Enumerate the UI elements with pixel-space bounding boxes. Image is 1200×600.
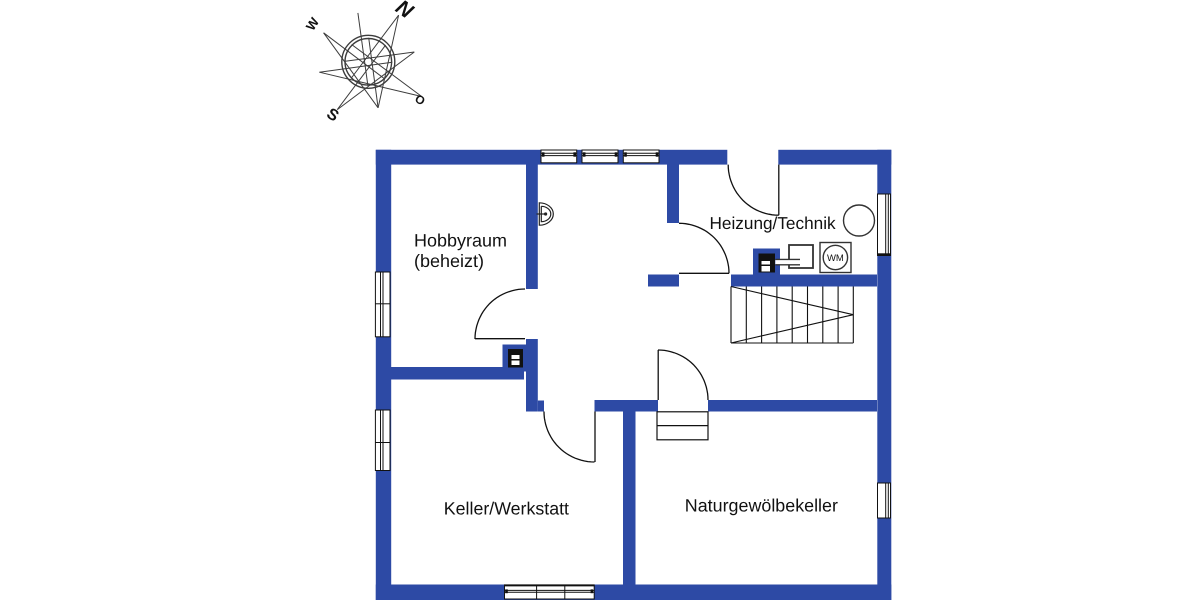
svg-text:Heizung/Technik: Heizung/Technik bbox=[710, 213, 837, 233]
svg-text:Keller/Werkstatt: Keller/Werkstatt bbox=[444, 498, 569, 518]
svg-text:(beheizt): (beheizt) bbox=[414, 251, 484, 271]
svg-text:Hobbyraum: Hobbyraum bbox=[414, 231, 507, 251]
svg-text:Naturgewölbekeller: Naturgewölbekeller bbox=[685, 496, 838, 516]
svg-text:WM: WM bbox=[827, 253, 844, 264]
